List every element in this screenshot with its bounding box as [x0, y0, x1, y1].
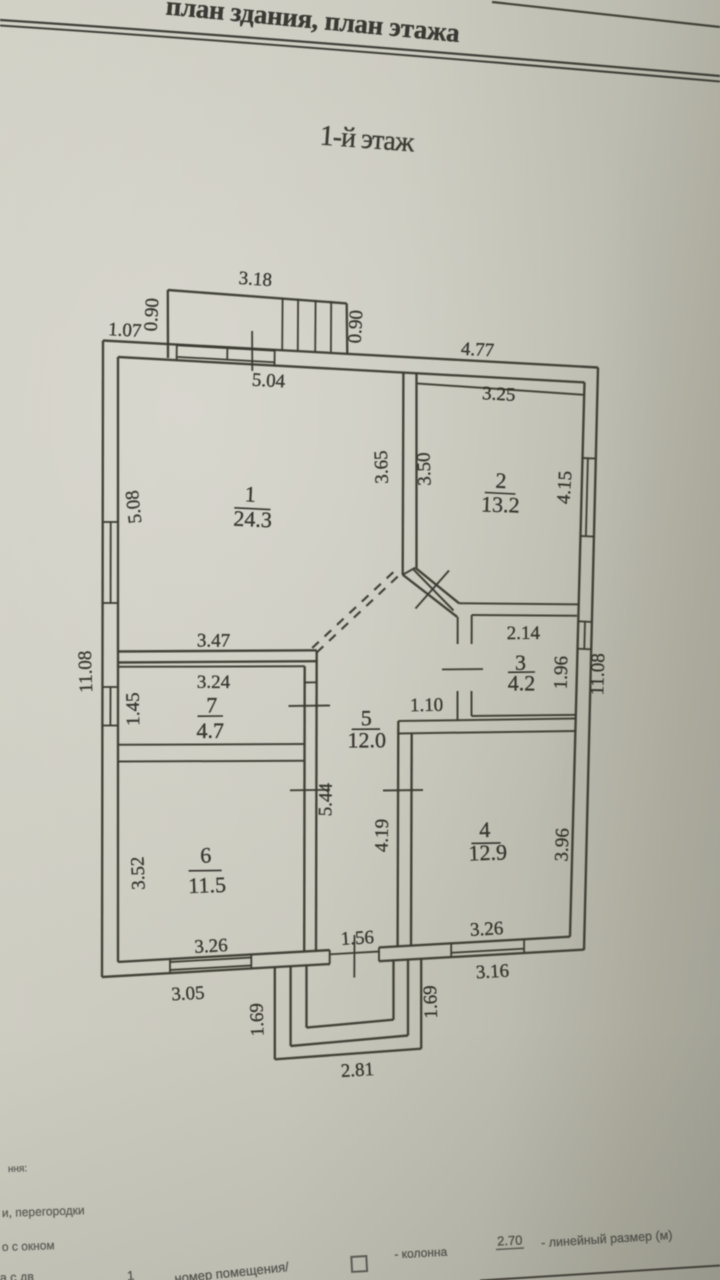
svg-text:4.77: 4.77: [460, 339, 494, 362]
svg-text:1.96: 1.96: [551, 656, 573, 690]
svg-text:3.16: 3.16: [475, 961, 509, 984]
svg-text:0.90: 0.90: [345, 310, 368, 344]
svg-text:1.69: 1.69: [246, 1003, 268, 1037]
svg-text:1-й этаж: 1-й этаж: [319, 121, 416, 159]
svg-text:3.25: 3.25: [482, 383, 516, 406]
svg-text:0.90: 0.90: [141, 298, 164, 332]
svg-text:4: 4: [479, 817, 491, 842]
svg-text:3.47: 3.47: [197, 630, 230, 651]
svg-text:1.69: 1.69: [420, 985, 442, 1019]
svg-text:1.10: 1.10: [410, 695, 444, 717]
svg-text:1.07: 1.07: [108, 319, 142, 342]
svg-text:2.70: 2.70: [497, 1232, 523, 1248]
svg-text:5.04: 5.04: [251, 370, 286, 393]
svg-text:4.15: 4.15: [553, 470, 576, 504]
svg-text:3.50: 3.50: [413, 452, 435, 486]
svg-text:3.52: 3.52: [127, 856, 149, 890]
svg-text:11.08: 11.08: [75, 650, 97, 693]
svg-text:2.14: 2.14: [507, 623, 541, 644]
svg-text:ння:: ння:: [8, 1163, 28, 1175]
svg-text:12.9: 12.9: [468, 839, 507, 865]
svg-text:о с окном: о с окном: [2, 1238, 55, 1254]
svg-text:а с дв: а с дв: [0, 1270, 35, 1280]
svg-text:11.5: 11.5: [188, 872, 227, 898]
svg-text:3.05: 3.05: [171, 983, 205, 1006]
svg-text:номер помещения/: номер помещения/: [174, 1259, 290, 1280]
svg-text:3.96: 3.96: [551, 828, 573, 862]
svg-text:4.19: 4.19: [372, 819, 394, 853]
svg-text:2.81: 2.81: [340, 1059, 374, 1082]
svg-text:1: 1: [244, 481, 256, 506]
svg-text:и, перегородки: и, перегородки: [2, 1203, 85, 1220]
svg-text:7: 7: [206, 693, 217, 718]
svg-text:11.08: 11.08: [587, 653, 609, 696]
svg-text:3.26: 3.26: [470, 918, 504, 941]
svg-text:3.26: 3.26: [194, 935, 228, 958]
svg-text:3.65: 3.65: [371, 450, 393, 484]
svg-text:13.2: 13.2: [481, 491, 520, 517]
svg-text:3.18: 3.18: [238, 268, 273, 291]
svg-text:4.2: 4.2: [508, 671, 536, 696]
svg-text:24.3: 24.3: [233, 506, 273, 533]
svg-text:12.0: 12.0: [347, 728, 386, 753]
svg-text:2: 2: [495, 468, 507, 493]
svg-text:1.56: 1.56: [340, 927, 374, 950]
svg-text:- линейный размер (м): - линейный размер (м): [541, 1228, 673, 1250]
svg-text:1: 1: [127, 1268, 135, 1280]
svg-text:4.7: 4.7: [196, 718, 224, 743]
svg-text:6: 6: [200, 842, 212, 867]
svg-text:5.08: 5.08: [122, 489, 146, 524]
svg-text:- колонна: - колонна: [394, 1245, 448, 1262]
svg-text:5.44: 5.44: [315, 782, 337, 816]
svg-text:3.24: 3.24: [197, 672, 231, 693]
svg-text:1.45: 1.45: [123, 692, 145, 726]
